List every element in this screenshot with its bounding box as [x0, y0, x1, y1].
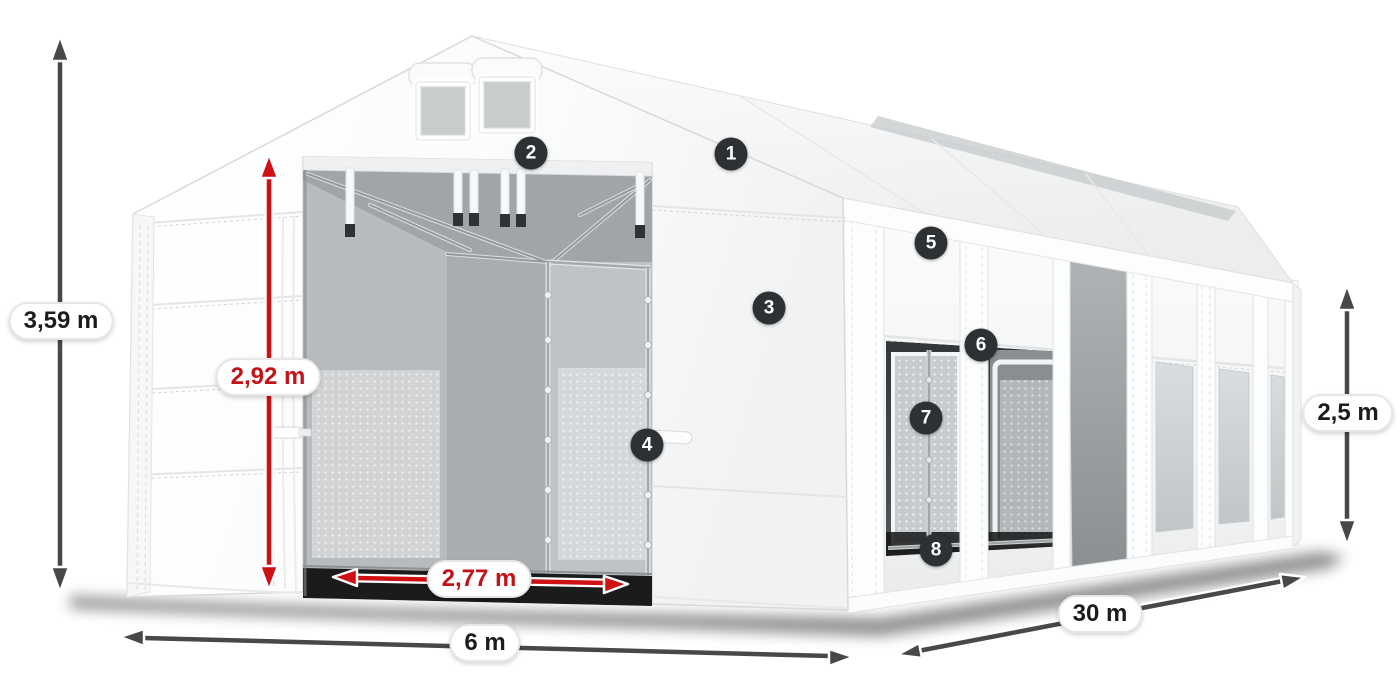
gable-vent-left	[409, 63, 477, 140]
side-window-2	[1219, 369, 1249, 524]
door-handle-left	[270, 427, 311, 438]
dim-arrow-side-height	[1338, 285, 1356, 545]
side-far-corner	[1293, 283, 1301, 546]
front-left-corner-band	[127, 214, 154, 597]
dim-arrow-total-height	[51, 36, 69, 592]
tent-illustration	[0, 0, 1400, 700]
door-handle-right	[652, 430, 693, 444]
side-window-3	[1271, 375, 1284, 519]
gable-vent-right	[472, 58, 542, 133]
product-diagram-stage: 1 2 3 4 5 6 7 8 3,59 m 2,92 m 2,77 m 6 m…	[0, 0, 1400, 700]
gable-vents	[409, 58, 542, 140]
front-door-interior	[303, 156, 652, 606]
side-window-1	[1156, 362, 1193, 532]
dim-arrow-front-width	[120, 629, 853, 666]
